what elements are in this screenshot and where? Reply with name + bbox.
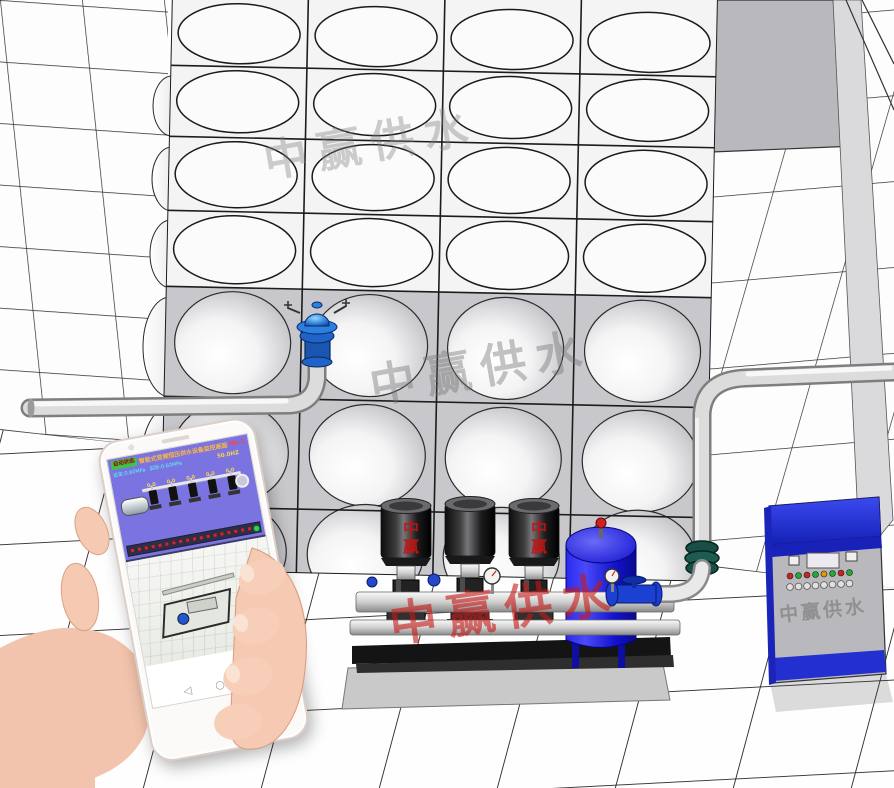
scene-pump-room-render: 中赢供水 中赢供水 中赢供水 中赢供水 中赢 中赢 自动状态 智能式变频恒压供水…: [0, 0, 894, 788]
thumb: [56, 502, 116, 634]
hand-fingers-layer: [0, 0, 894, 788]
